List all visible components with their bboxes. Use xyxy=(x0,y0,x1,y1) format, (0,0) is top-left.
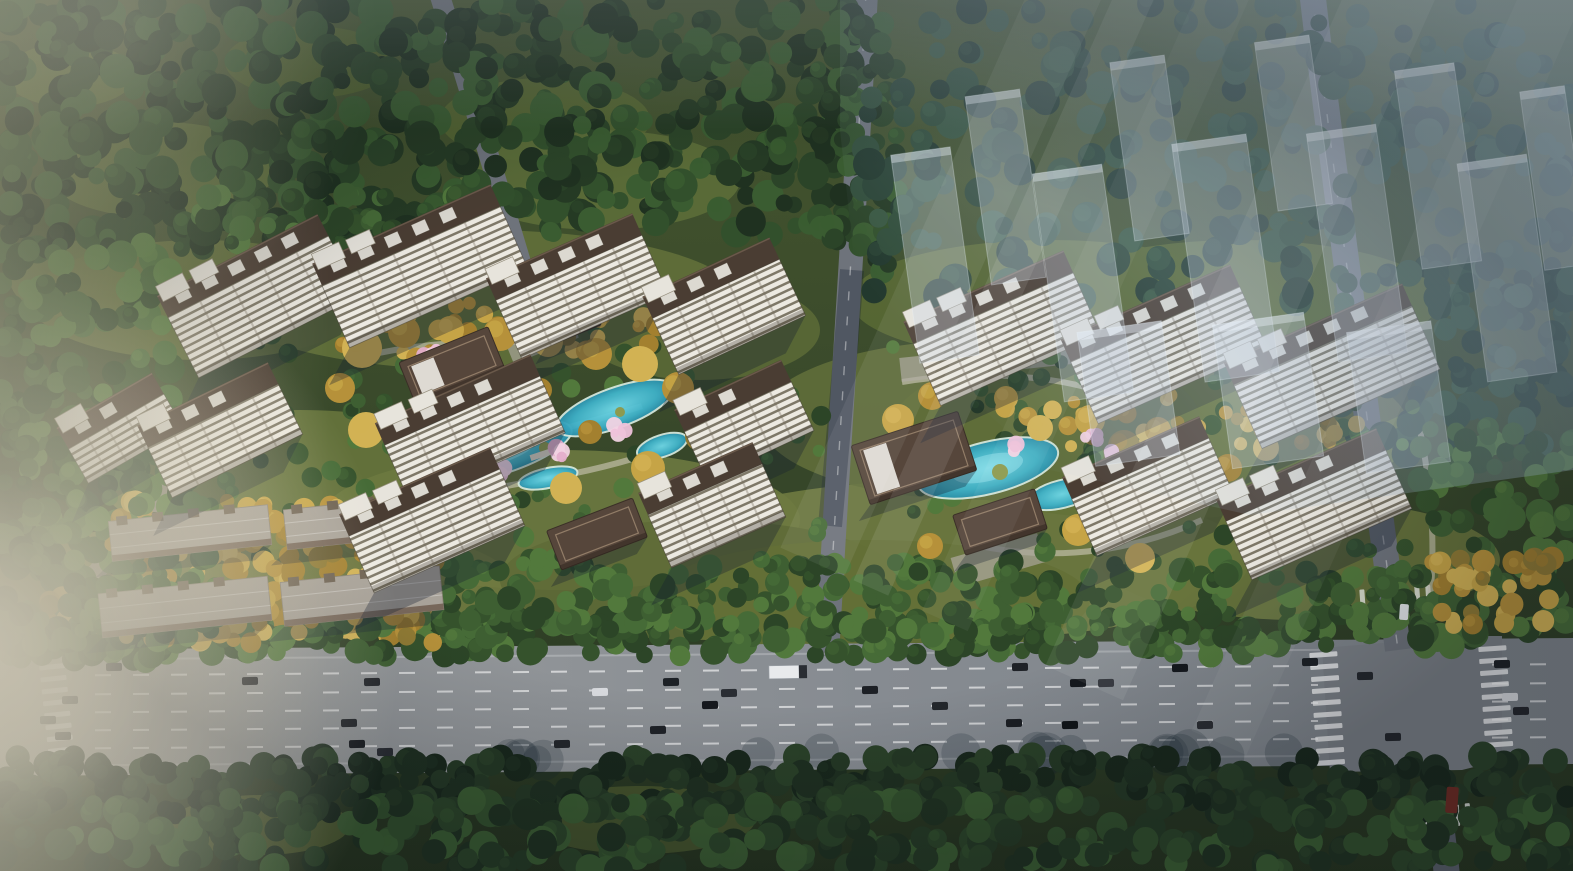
vignette xyxy=(0,0,1573,871)
atmosphere-layer xyxy=(0,0,1573,871)
aerial-render-image xyxy=(0,0,1573,871)
aerial-render-canvas xyxy=(0,0,1573,871)
